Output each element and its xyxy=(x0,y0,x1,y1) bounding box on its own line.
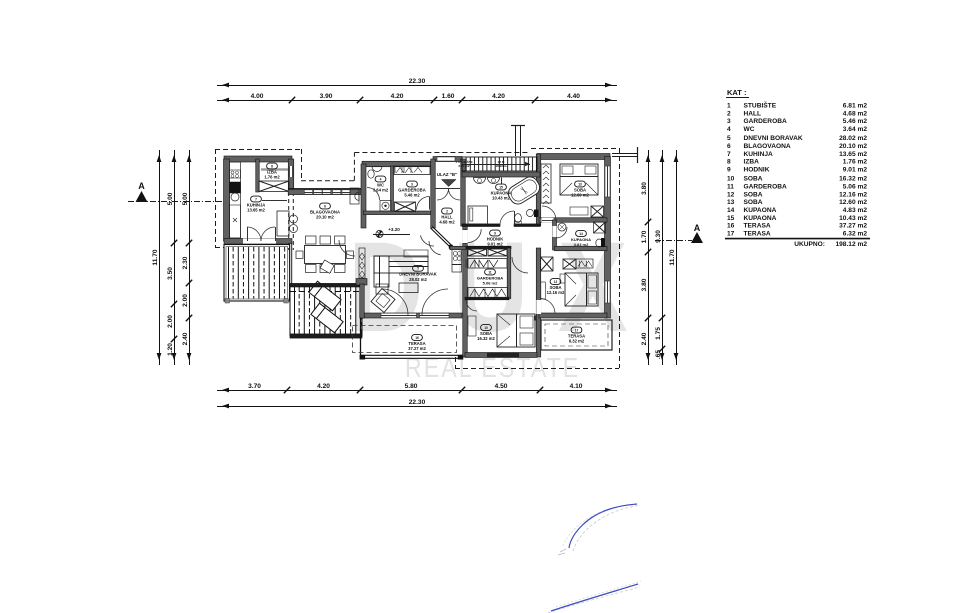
svg-text:STUBIŠTE: STUBIŠTE xyxy=(744,101,777,110)
svg-text:12.16 m2: 12.16 m2 xyxy=(547,290,565,295)
svg-text:6.81 m2: 6.81 m2 xyxy=(458,164,469,168)
svg-text:.65: .65 xyxy=(655,350,662,359)
svg-text:20.10 m2: 20.10 m2 xyxy=(839,143,867,150)
svg-text:13.65 m2: 13.65 m2 xyxy=(839,151,867,158)
svg-text:WC: WC xyxy=(744,126,755,133)
svg-text:1.70: 1.70 xyxy=(641,230,648,243)
svg-text:12.60 m2: 12.60 m2 xyxy=(839,199,867,206)
svg-text:GARDEROBA: GARDEROBA xyxy=(744,183,787,190)
svg-text:14: 14 xyxy=(579,232,583,236)
svg-text:KUPAONA: KUPAONA xyxy=(744,215,777,222)
svg-text:5.06 m2: 5.06 m2 xyxy=(483,281,498,286)
svg-text:1.20: 1.20 xyxy=(167,343,174,356)
svg-text:3.64 m2: 3.64 m2 xyxy=(843,126,868,133)
svg-text:HODNIK: HODNIK xyxy=(744,167,770,174)
svg-text:5: 5 xyxy=(727,135,731,142)
svg-text:5: 5 xyxy=(417,267,419,271)
svg-text:10: 10 xyxy=(484,326,488,330)
svg-text:13: 13 xyxy=(578,182,582,186)
svg-text:1.76 m2: 1.76 m2 xyxy=(264,175,280,180)
svg-text:SOBA: SOBA xyxy=(744,191,763,198)
svg-text:SOBA: SOBA xyxy=(744,176,763,183)
svg-text:3.50: 3.50 xyxy=(167,267,174,280)
svg-text:11: 11 xyxy=(727,183,734,190)
svg-text:18.92 m: 18.92 m xyxy=(495,164,506,168)
svg-text:4.20: 4.20 xyxy=(391,93,404,100)
svg-text:22.30: 22.30 xyxy=(409,78,426,85)
svg-text:4.40: 4.40 xyxy=(567,93,580,100)
svg-text:4.10: 4.10 xyxy=(570,383,583,390)
svg-text:10: 10 xyxy=(727,176,735,183)
svg-text:12: 12 xyxy=(554,280,558,284)
svg-text:+3.20: +3.20 xyxy=(388,227,400,232)
svg-text:6.32 m2: 6.32 m2 xyxy=(843,231,868,238)
svg-text:4: 4 xyxy=(727,126,731,133)
svg-text:UKUPNO:: UKUPNO: xyxy=(794,241,825,248)
svg-text:A: A xyxy=(138,181,145,191)
svg-text:3: 3 xyxy=(727,118,731,125)
svg-text:13.65 m2: 13.65 m2 xyxy=(247,208,265,213)
svg-text:17: 17 xyxy=(727,231,735,238)
svg-text:SOBA: SOBA xyxy=(744,199,763,206)
svg-text:3.80: 3.80 xyxy=(641,278,648,291)
svg-text:4.68 m2: 4.68 m2 xyxy=(843,110,868,117)
svg-text:3.64 m2: 3.64 m2 xyxy=(373,188,389,193)
svg-text:2.30: 2.30 xyxy=(182,256,189,269)
svg-text:11: 11 xyxy=(488,270,492,274)
svg-text:12.16 m2: 12.16 m2 xyxy=(839,191,867,198)
svg-text:9.01 m2: 9.01 m2 xyxy=(843,167,868,174)
svg-text:2: 2 xyxy=(446,209,448,213)
svg-text:11.70: 11.70 xyxy=(152,249,159,265)
svg-text:3: 3 xyxy=(411,182,413,186)
svg-text:6.32 m2: 6.32 m2 xyxy=(569,339,585,344)
svg-text:11.70: 11.70 xyxy=(669,249,676,265)
svg-text:1.75: 1.75 xyxy=(655,327,662,340)
svg-text:KUPAONA: KUPAONA xyxy=(744,207,777,214)
svg-text:22.30: 22.30 xyxy=(409,399,426,406)
svg-text:GARDEROBA: GARDEROBA xyxy=(744,118,787,125)
svg-text:5.00: 5.00 xyxy=(167,192,174,205)
svg-text:TERASA: TERASA xyxy=(744,231,771,238)
svg-text:2.00: 2.00 xyxy=(182,294,189,307)
svg-text:5.46 m2: 5.46 m2 xyxy=(404,193,420,198)
svg-text:8: 8 xyxy=(271,164,273,168)
svg-text:BLAGOVAONA: BLAGOVAONA xyxy=(744,143,791,150)
svg-text:5.80: 5.80 xyxy=(405,383,418,390)
svg-text:17: 17 xyxy=(575,328,579,332)
svg-text:10.43 m2: 10.43 m2 xyxy=(492,196,510,201)
svg-text:3.90: 3.90 xyxy=(320,93,333,100)
svg-text:4.83 m2: 4.83 m2 xyxy=(574,242,589,247)
svg-text:16.32 m2: 16.32 m2 xyxy=(839,176,867,183)
svg-text:20.10 m2: 20.10 m2 xyxy=(316,215,334,220)
svg-text:3.70: 3.70 xyxy=(248,383,261,390)
svg-text:28.02 m2: 28.02 m2 xyxy=(839,135,867,142)
svg-text:2.40: 2.40 xyxy=(641,332,648,345)
svg-text:DNEVNI BORAVAK: DNEVNI BORAVAK xyxy=(744,135,803,142)
svg-text:2.40: 2.40 xyxy=(182,332,189,345)
svg-text:KUHINJA: KUHINJA xyxy=(744,151,774,158)
svg-text:10.43 m2: 10.43 m2 xyxy=(839,215,867,222)
svg-text:9.01 m2: 9.01 m2 xyxy=(487,242,503,247)
svg-text:16: 16 xyxy=(727,223,735,230)
svg-text:4: 4 xyxy=(380,177,382,181)
svg-text:12.60 m2: 12.60 m2 xyxy=(571,193,589,198)
svg-text:4.83 m2: 4.83 m2 xyxy=(843,207,868,214)
svg-text:ULAZ "B": ULAZ "B" xyxy=(437,172,457,177)
svg-text:13: 13 xyxy=(727,199,735,206)
svg-text:14: 14 xyxy=(727,207,735,214)
svg-text:15: 15 xyxy=(727,215,735,222)
svg-text:4.00: 4.00 xyxy=(251,93,264,100)
svg-text:1.60: 1.60 xyxy=(442,93,455,100)
svg-text:2: 2 xyxy=(727,110,731,117)
svg-text:37.27 m2: 37.27 m2 xyxy=(408,346,426,351)
svg-text:7: 7 xyxy=(255,197,257,201)
svg-text:9: 9 xyxy=(494,231,496,235)
svg-text:198.12 m2: 198.12 m2 xyxy=(835,241,867,248)
svg-text:4.20: 4.20 xyxy=(492,93,505,100)
svg-text:16.32 m2: 16.32 m2 xyxy=(477,336,495,341)
svg-text:28.02 m2: 28.02 m2 xyxy=(409,277,427,282)
svg-text:1: 1 xyxy=(727,103,731,110)
svg-text:4.50: 4.50 xyxy=(495,383,508,390)
svg-text:2.00: 2.00 xyxy=(167,315,174,328)
svg-text:5.06 m2: 5.06 m2 xyxy=(843,183,868,190)
svg-text:9: 9 xyxy=(727,167,731,174)
svg-text:4.68 m2: 4.68 m2 xyxy=(439,220,455,225)
svg-text:A: A xyxy=(694,223,701,233)
svg-text:6: 6 xyxy=(324,204,326,208)
svg-text:KAT :: KAT : xyxy=(727,88,746,97)
svg-text:HALL: HALL xyxy=(744,110,762,117)
svg-text:8: 8 xyxy=(727,159,731,166)
svg-text:5.00: 5.00 xyxy=(182,192,189,205)
svg-text:12: 12 xyxy=(727,191,735,198)
svg-text:15: 15 xyxy=(499,185,503,189)
svg-text:4.20: 4.20 xyxy=(317,383,330,390)
svg-text:6: 6 xyxy=(727,143,731,150)
svg-text:TERASA: TERASA xyxy=(744,223,771,230)
svg-text:IZBA: IZBA xyxy=(744,159,760,166)
svg-text:6.81 m2: 6.81 m2 xyxy=(843,103,868,110)
svg-text:16: 16 xyxy=(415,336,419,340)
svg-text:5.46 m2: 5.46 m2 xyxy=(843,118,868,125)
svg-text:7: 7 xyxy=(727,151,731,158)
svg-text:3.80: 3.80 xyxy=(641,182,648,195)
svg-text:1.76 m2: 1.76 m2 xyxy=(843,159,868,166)
svg-text:37.27 m2: 37.27 m2 xyxy=(839,223,867,230)
